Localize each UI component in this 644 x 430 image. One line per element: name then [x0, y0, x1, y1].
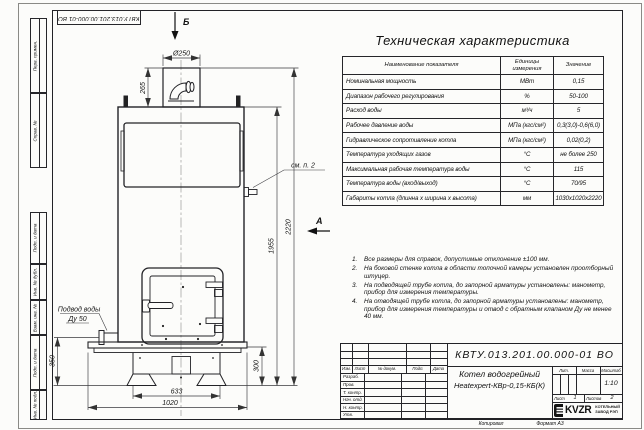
list-item: 3.На подводящей трубе котла, до запорной…	[352, 282, 620, 297]
spec-name: Диапазон рабочего регулирования	[343, 89, 501, 104]
list-item: 2.На боковой стенке котла в области топо…	[352, 265, 620, 280]
spec-value: не более 250	[554, 147, 604, 162]
col-header-units: Единицы измерения	[501, 57, 554, 75]
table-row: Температура уходящих газов°Сне более 250	[343, 147, 604, 162]
spec-units: МВт	[501, 75, 554, 90]
stamp-label: Подп. и дата	[33, 348, 38, 377]
table-row: Температура воды (вход/выход)°С70/95	[343, 177, 604, 192]
doc-number: КВТУ.013.201.00.000-01 ВО	[447, 344, 622, 366]
col-header-value: Значение	[554, 57, 604, 75]
stamp-label: Инв. № подл.	[33, 391, 38, 420]
note-text: Все размеры для справок, допустимые откл…	[364, 256, 620, 264]
role-t-kontr: Т. контр.	[343, 390, 362, 395]
sheets-label: Листов	[586, 396, 601, 401]
stamp-label: Взам. инв. №	[33, 303, 38, 331]
note-text: На отводящей трубе котла, до запорной ар…	[364, 298, 620, 321]
notes-list: 1.Все размеры для справок, допустимые от…	[352, 256, 620, 322]
copied-label: Копировал	[455, 421, 527, 427]
product-name-line1: Котел водогрейный	[447, 369, 552, 379]
spec-value: 70/95	[554, 177, 604, 192]
spec-units: °С	[501, 177, 554, 192]
format-label: Формат А3	[522, 421, 578, 427]
rev-header-list: Лист	[352, 366, 368, 371]
scale-label: Масштаб	[600, 368, 622, 373]
table-header-row: Наименование показателя Единицы измерени…	[343, 57, 604, 75]
spec-name: Габариты котла (длинна х ширина х высота…	[343, 191, 501, 206]
note-number: 4.	[352, 298, 364, 321]
stamp-label: Перв. примен.	[33, 40, 38, 71]
spec-table: Наименование показателя Единицы измерени…	[342, 56, 604, 206]
spec-name: Гидравлическое сопротивление котла	[343, 133, 501, 148]
rev-header-dokum: № докум.	[368, 366, 406, 371]
lit-label: Лит.	[552, 368, 576, 373]
spec-value: 115	[554, 162, 604, 177]
margin-stamp-vzam-inv: Взам. инв. №	[30, 300, 47, 335]
margin-stamp-inv-podl: Инв. № подл.	[30, 390, 47, 420]
spec-value: 5	[554, 104, 604, 119]
spec-units: °С	[501, 162, 554, 177]
table-row: Максимальная рабочая температура воды°С1…	[343, 162, 604, 177]
rev-header-data: Дата	[430, 366, 447, 371]
kvzr-logo-text: KVZR	[565, 404, 591, 416]
stamp-label: Справ. №	[33, 120, 38, 141]
rev-header-podp: Подп.	[406, 366, 430, 371]
margin-stamp-podp-data-2: Подп. и дата	[30, 335, 47, 390]
spec-units: МПа (кгс/см²)	[501, 118, 554, 133]
list-item: 4.На отводящей трубе котла, до запорной …	[352, 298, 620, 321]
scale-value: 1:10	[600, 380, 622, 387]
role-utv: Утв.	[343, 412, 353, 417]
spec-table-title: Техническая характеристика	[342, 33, 603, 48]
margin-stamp-podp-data-1: Подп. и дата	[30, 212, 47, 264]
list-item: 1.Все размеры для справок, допустимые от…	[352, 256, 620, 264]
mass-label: Масса	[576, 368, 600, 373]
spec-units: м³/ч	[501, 104, 554, 119]
table-row: Габариты котла (длинна х ширина х высота…	[343, 191, 604, 206]
sheet-value: 1	[567, 395, 583, 401]
company-name-line1: КОТЕЛЬНЫЙ	[595, 405, 620, 409]
spec-name: Расход воды	[343, 104, 501, 119]
note-text: На боковой стенке котла в области топочн…	[364, 265, 620, 280]
sheet-label: Лист	[554, 396, 565, 401]
company-name-line2: ЗАВОД РЭП	[595, 410, 617, 414]
table-row: Номинальная мощностьМВт0,15	[343, 75, 604, 90]
col-header-name: Наименование показателя	[343, 57, 501, 75]
note-text: На подводящей трубе котла, до запорной а…	[364, 282, 620, 297]
company-name: КОТЕЛЬНЫЙ ЗАВОД РЭП	[595, 405, 620, 414]
top-doc-number: КВТУ.013.201.00.000-01 ВО	[58, 15, 139, 21]
table-row: Рабочее давление водыМПа (кгс/см²)0,3(3,…	[343, 118, 604, 133]
margin-stamp-sprav-no: Справ. №	[30, 93, 47, 168]
role-n-kontr: Н. контр.	[343, 405, 363, 410]
spec-name: Температура воды (вход/выход)	[343, 177, 501, 192]
spec-value: 0,02(0,2)	[554, 133, 604, 148]
spec-units: мм	[501, 191, 554, 206]
role-nach-otd: Нач. отд.	[343, 397, 363, 402]
role-razrab: Разраб.	[343, 374, 359, 379]
spec-units: °С	[501, 147, 554, 162]
table-row: Диапазон рабочего регулирования%50-100	[343, 89, 604, 104]
title-block: Изм. Лист № докум. Подп. Дата Разраб. Пр…	[340, 343, 623, 419]
stamp-label: Инв. № дубл.	[33, 268, 38, 296]
note-number: 1.	[352, 256, 364, 264]
note-number: 2.	[352, 265, 364, 280]
spec-value: 50-100	[554, 89, 604, 104]
table-row: Расход водым³/ч5	[343, 104, 604, 119]
spec-value: 0,3(3,0)-0,6(6,0)	[554, 118, 604, 133]
spec-units: МПа (кгс/см²)	[501, 133, 554, 148]
kvzr-logo-icon	[554, 404, 563, 417]
top-doc-number-box: КВТУ.013.201.00.000-01 ВО	[57, 10, 141, 25]
spec-name: Температура уходящих газов	[343, 147, 501, 162]
spec-units: %	[501, 89, 554, 104]
role-prov: Пров.	[343, 382, 355, 387]
spec-value: 0,15	[554, 75, 604, 90]
margin-stamp-perv-primen: Перв. примен.	[30, 18, 47, 93]
table-row: Гидравлическое сопротивление котлаМПа (к…	[343, 133, 604, 148]
rev-header-izm: Изм.	[341, 366, 352, 371]
spec-name: Рабочее давление воды	[343, 118, 501, 133]
sheets-value: 2	[603, 395, 621, 401]
margin-stamp-inv-dubl: Инв. № дубл.	[30, 264, 47, 300]
company-logo: KVZR КОТЕЛЬНЫЙ ЗАВОД РЭП	[554, 403, 620, 417]
spec-value: 1030х1020х2220	[554, 191, 604, 206]
note-number: 3.	[352, 282, 364, 297]
spec-name: Номинальная мощность	[343, 75, 501, 90]
product-name-line2: Heatexpert-КВр-0,15-КБ(К)	[447, 381, 552, 390]
drawing-sheet: Перв. примен. Справ. № Подп. и дата Инв.…	[0, 0, 644, 430]
spec-name: Максимальная рабочая температура воды	[343, 162, 501, 177]
stamp-label: Подп. и дата	[33, 224, 38, 253]
